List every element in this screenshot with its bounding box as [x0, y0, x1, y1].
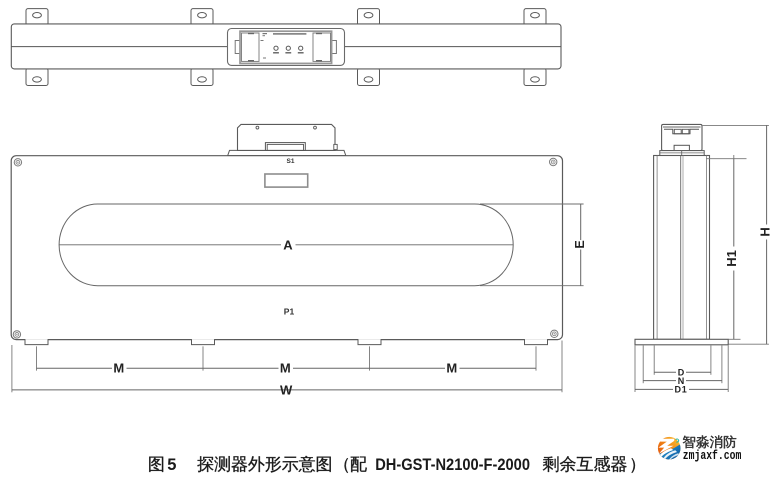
svg-text:H: H [758, 227, 773, 236]
svg-text:E: E [573, 240, 587, 248]
svg-text:zmjaxf.com: zmjaxf.com [683, 449, 742, 463]
svg-text:M: M [280, 361, 291, 376]
svg-text:H1: H1 [724, 250, 739, 267]
svg-text:D1: D1 [674, 385, 687, 395]
svg-text:A: A [283, 237, 293, 252]
svg-text:M: M [113, 361, 124, 376]
svg-text:P1: P1 [284, 307, 295, 317]
svg-text:5: 5 [167, 456, 176, 474]
svg-text:DH-GST-N2100-F-2000: DH-GST-N2100-F-2000 [375, 456, 530, 474]
svg-text:S1: S1 [287, 158, 295, 165]
svg-text:W: W [280, 383, 293, 398]
svg-text:M: M [446, 361, 457, 376]
